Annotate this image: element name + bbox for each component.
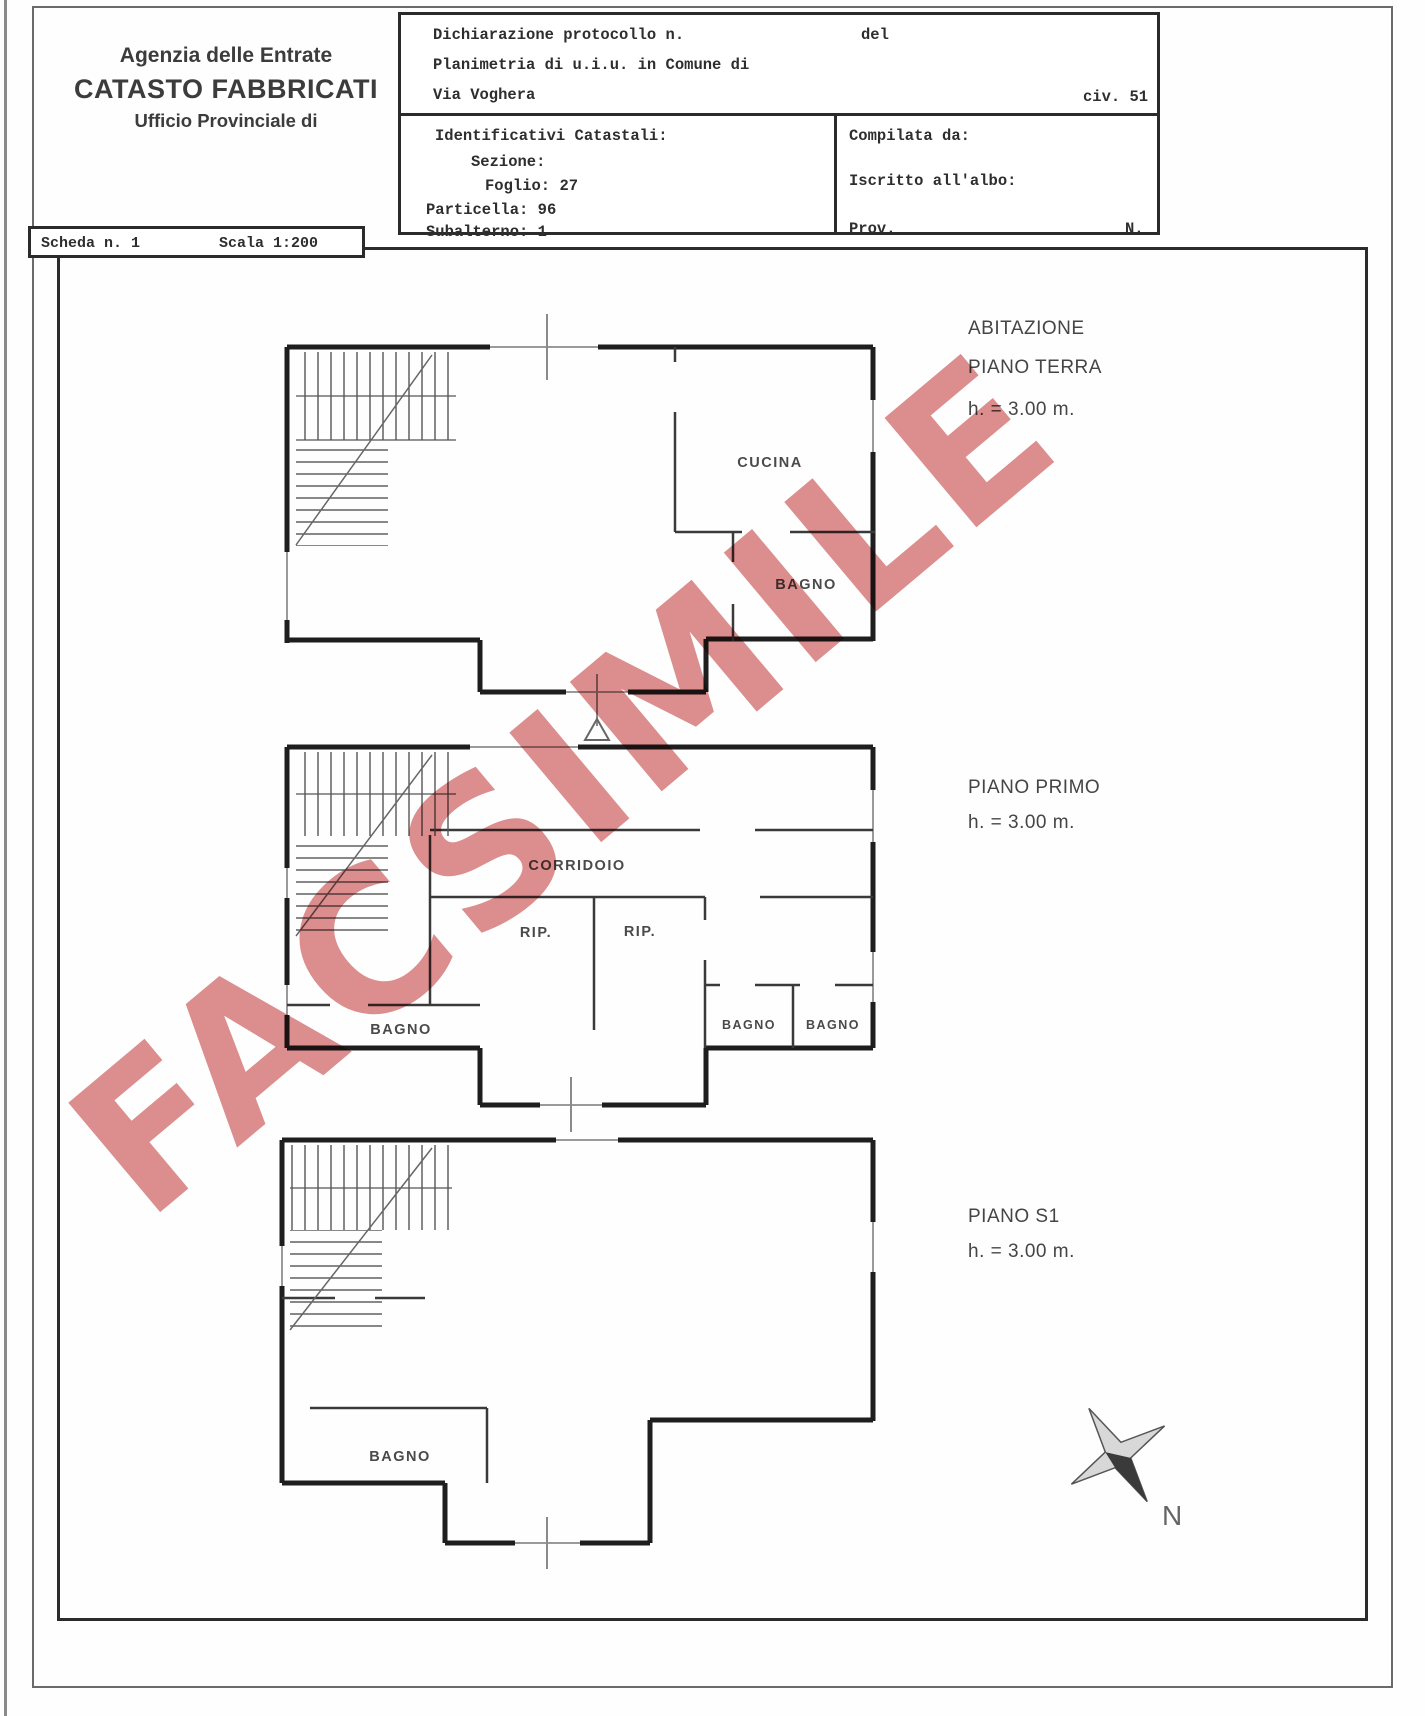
plan-piano-terra [287, 314, 875, 740]
room-label-bagno-primo-mid: BAGNO [722, 1018, 776, 1032]
annot-height-terra: h. = 3.00 m. [968, 399, 1075, 421]
plan-piano-primo [287, 747, 873, 1132]
room-label-rip-2: RIP. [624, 924, 656, 940]
compass-rose-icon [1071, 1408, 1164, 1501]
stairs-icon-s1 [290, 1145, 452, 1330]
annot-piano-terra: PIANO TERRA [968, 357, 1102, 379]
north-label: N [1162, 1500, 1182, 1532]
annot-piano-primo: PIANO PRIMO [968, 777, 1100, 799]
floorplan-drawing [0, 0, 1425, 1716]
plan-piano-s1 [282, 1140, 873, 1569]
room-label-bagno-s1: BAGNO [369, 1449, 430, 1465]
annot-height-primo: h. = 3.00 m. [968, 812, 1075, 834]
annot-piano-s1: PIANO S1 [968, 1206, 1060, 1228]
room-label-bagno-primo-left: BAGNO [370, 1022, 431, 1038]
room-label-bagno-primo-right: BAGNO [806, 1018, 860, 1032]
room-label-corridoio: CORRIDOIO [528, 858, 625, 874]
annot-abitazione: ABITAZIONE [968, 318, 1085, 340]
stairs-icon-primo [296, 752, 456, 936]
room-label-cucina: CUCINA [737, 455, 802, 471]
room-label-bagno-terra: BAGNO [775, 577, 836, 593]
stairs-icon-terra [296, 352, 456, 546]
room-label-rip-1: RIP. [520, 925, 552, 941]
annot-height-s1: h. = 3.00 m. [968, 1241, 1075, 1263]
cadastral-floorplan-document: Agenzia delle Entrate CATASTO FABBRICATI… [0, 0, 1425, 1716]
